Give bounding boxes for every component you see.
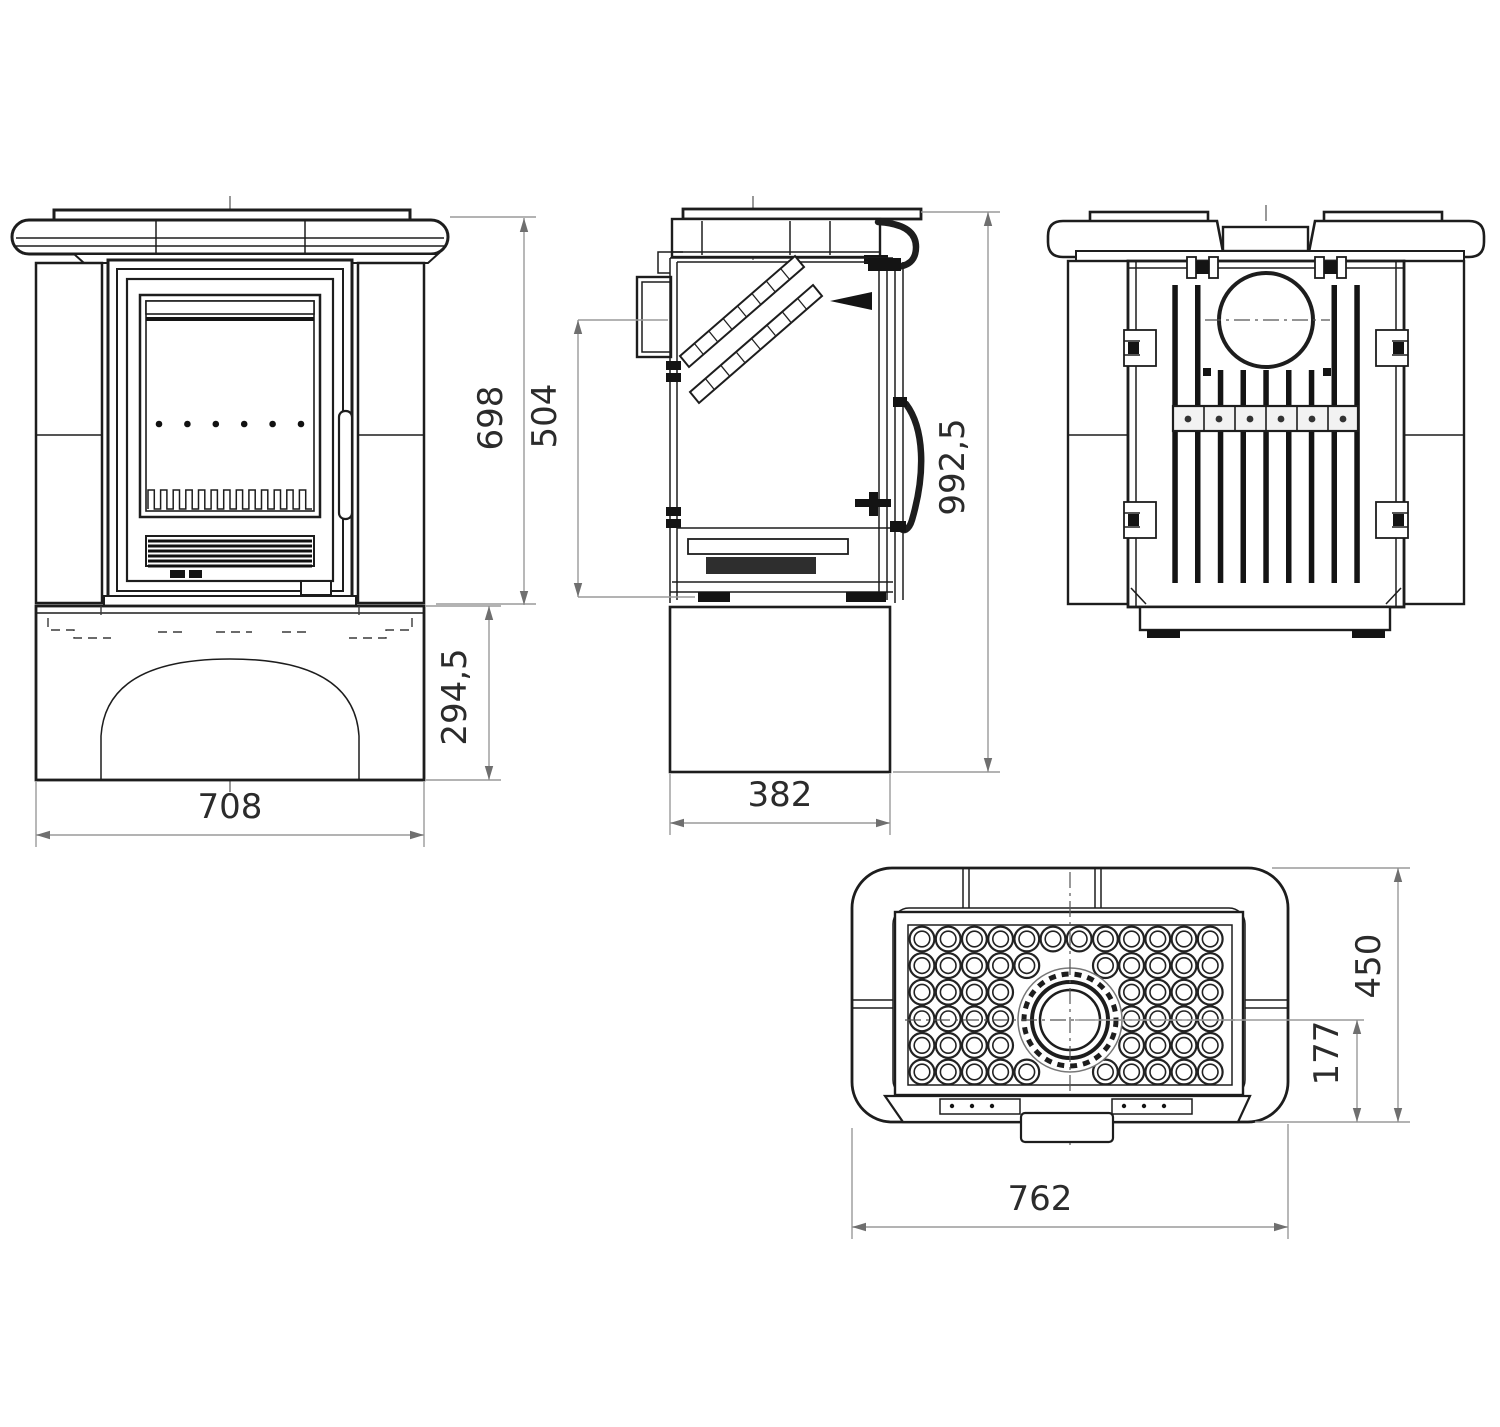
log-retainer-zigzag bbox=[148, 490, 312, 509]
side-view bbox=[637, 196, 921, 772]
technical-drawing-sheet: 698 504 992,5 294,5 708 382 762 450 177 bbox=[0, 0, 1500, 1427]
mounting-strip bbox=[1173, 406, 1358, 431]
dim-label-depth: 382 bbox=[748, 775, 813, 815]
grille-latch-right bbox=[189, 570, 202, 578]
baffle-support-wedge bbox=[830, 292, 872, 310]
rear-side-panel-left bbox=[1068, 261, 1128, 604]
front-crown bbox=[12, 220, 448, 263]
rear-crown-band bbox=[1076, 251, 1464, 261]
stove-dimension-drawing: 698 504 992,5 294,5 708 382 762 450 177 bbox=[0, 0, 1500, 1427]
dim-label-plinth-height: 294,5 bbox=[435, 648, 475, 745]
front-plinth bbox=[36, 606, 424, 780]
rear-edge-clip-left-bottom bbox=[1124, 502, 1156, 538]
dim-label-flue-to-front: 177 bbox=[1307, 1021, 1347, 1086]
grate-tray bbox=[688, 539, 848, 554]
top-hinge-detail-right bbox=[1112, 1099, 1192, 1114]
dim-label-top-width: 762 bbox=[1008, 1179, 1073, 1219]
door-corner-step bbox=[301, 581, 331, 595]
door-glass bbox=[146, 301, 314, 511]
front-column-right bbox=[358, 263, 424, 603]
side-pedestal bbox=[670, 607, 890, 772]
front-column-left bbox=[36, 263, 102, 603]
glass-top-bar bbox=[146, 301, 314, 314]
top-view bbox=[852, 868, 1288, 1145]
dim-label-front-height: 698 bbox=[471, 386, 511, 451]
chimney-connector bbox=[1223, 227, 1308, 251]
dim-label-firebox-height: 504 bbox=[525, 384, 565, 449]
rear-edge-clip-right-bottom bbox=[1376, 502, 1408, 538]
dim-label-overall-height: 992,5 bbox=[933, 418, 973, 515]
top-hinge-detail-left bbox=[940, 1099, 1020, 1114]
air-grille bbox=[146, 536, 314, 566]
dim-label-front-width: 708 bbox=[198, 787, 263, 827]
glass-top-line bbox=[146, 317, 314, 321]
dim-label-top-depth: 450 bbox=[1349, 934, 1389, 999]
rear-side-panel-right bbox=[1404, 261, 1464, 604]
front-view bbox=[12, 196, 448, 795]
door-top-block bbox=[868, 258, 901, 271]
rear-view bbox=[1048, 205, 1484, 638]
door-latch bbox=[855, 492, 891, 516]
front-sill bbox=[104, 596, 356, 606]
rear-screw-right bbox=[1323, 368, 1331, 376]
side-top-plate bbox=[683, 209, 921, 219]
rear-bottom-box bbox=[1140, 607, 1390, 638]
front-door bbox=[108, 260, 352, 600]
rear-screw-left bbox=[1203, 368, 1211, 376]
side-body bbox=[666, 256, 921, 603]
grille-latch-left bbox=[170, 570, 185, 578]
rear-flue-collar bbox=[637, 252, 683, 357]
rear-edge-clip-left-top bbox=[1124, 330, 1156, 366]
door-handle bbox=[339, 411, 352, 519]
top-handle-box bbox=[1021, 1113, 1113, 1142]
rear-edge-clip-right-top bbox=[1376, 330, 1408, 366]
ash-pan bbox=[706, 557, 816, 574]
